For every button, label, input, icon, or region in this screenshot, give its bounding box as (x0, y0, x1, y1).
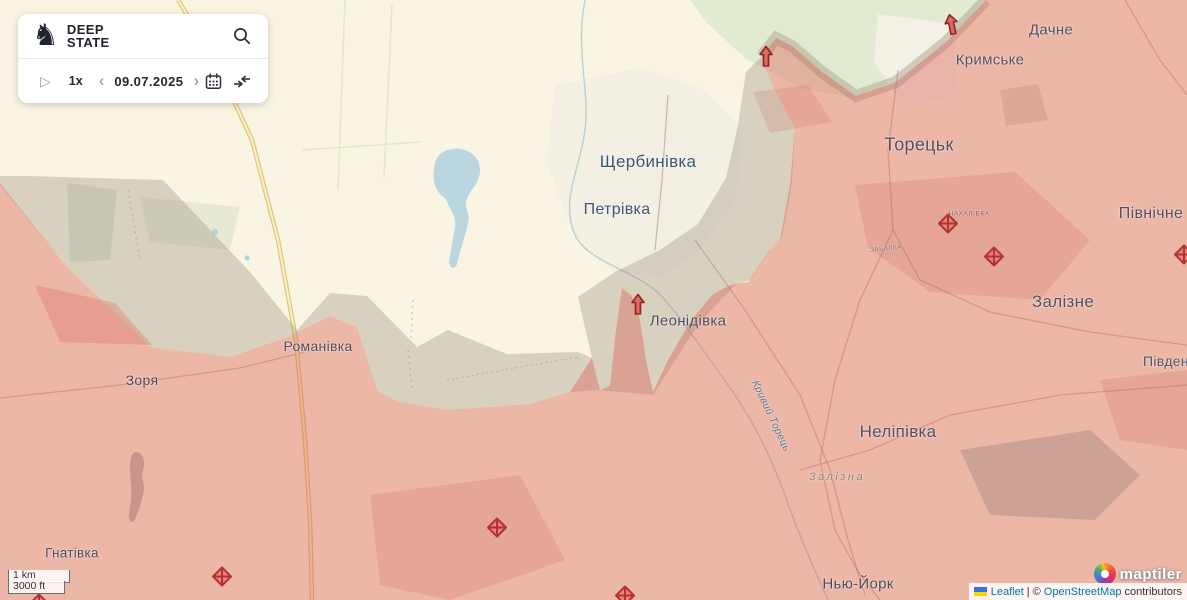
pond (245, 256, 250, 261)
next-day-button[interactable]: › (191, 71, 201, 91)
copyright-symbol: © (1033, 586, 1041, 598)
place-label: Нью-Йорк (822, 576, 893, 593)
map-canvas[interactable]: ЩербинівкаПетрівкаДачнеКримськеТорецькПі… (0, 0, 1187, 600)
maptiler-logo[interactable]: maptiler (1094, 563, 1182, 585)
lake (434, 149, 481, 268)
jump-to-latest-button[interactable] (230, 72, 254, 91)
place-label: Дачне (1029, 22, 1073, 39)
play-button[interactable]: ▷ (40, 73, 51, 90)
brand-line2: STATE (67, 36, 110, 50)
place-label: Петрівка (584, 201, 651, 219)
date-display[interactable]: 09.07.2025 (114, 74, 183, 89)
calendar-button[interactable] (203, 71, 224, 92)
place-label: Леонідівка (650, 313, 726, 330)
ukraine-flag-icon (974, 587, 987, 596)
fortification-diamond-icon (984, 246, 1005, 267)
deepstate-control-panel: ♞ DEEP STATE ▷ 1x ‹ 09.07.2025 › (18, 14, 268, 103)
place-label: Залізне (1032, 292, 1094, 312)
fortification-diamond-icon (938, 213, 959, 234)
maptiler-wordmark: maptiler (1120, 566, 1182, 583)
advance-arrow-icon (631, 294, 646, 316)
leaflet-link[interactable]: Leaflet (991, 586, 1024, 598)
fortification-marker[interactable] (984, 246, 1005, 272)
collapse-arrows-icon (232, 74, 252, 89)
advance-arrow-icon (759, 46, 774, 68)
contributors-text: contributors (1125, 586, 1182, 598)
advance-arrow-marker[interactable] (759, 46, 774, 73)
place-label: Неліпівка (860, 422, 937, 442)
place-label: Кримське (956, 52, 1025, 69)
osm-link[interactable]: OpenStreetMap (1044, 586, 1122, 598)
scale-imperial: 3000 ft (8, 581, 65, 594)
fortification-marker[interactable] (615, 585, 636, 600)
fortification-marker[interactable] (212, 566, 233, 592)
playback-speed[interactable]: 1x (69, 74, 83, 88)
panel-top-row: ♞ DEEP STATE (18, 14, 268, 58)
place-label: Залізна (809, 471, 865, 483)
fortification-diamond-icon (487, 517, 508, 538)
calendar-icon (205, 73, 222, 90)
fortification-marker[interactable] (487, 517, 508, 543)
place-label: Зоря (126, 372, 159, 388)
deepstate-knight-logo-icon: ♞ (32, 21, 59, 51)
place-label: Торецьк (884, 135, 953, 156)
field-lines (302, 0, 420, 190)
attribution-bar: Leaflet | © OpenStreetMap contributors (969, 583, 1187, 600)
advance-arrow-marker[interactable] (631, 294, 646, 321)
place-label: Північне (1119, 205, 1183, 223)
fortification-marker[interactable] (1174, 244, 1187, 270)
maptiler-pinwheel-icon (1094, 563, 1116, 585)
deepstate-brand: DEEP STATE (67, 23, 110, 50)
scale-control: 1 km 3000 ft (8, 570, 70, 594)
panel-timeline-row: ▷ 1x ‹ 09.07.2025 › (18, 59, 268, 103)
search-button[interactable] (230, 24, 254, 48)
place-label: Гнатівка (45, 546, 99, 561)
place-label: Романівка (283, 338, 352, 354)
place-label: Щербинівка (600, 152, 697, 172)
brand-line1: DEEP (67, 23, 110, 37)
fortification-diamond-icon (1174, 244, 1187, 265)
fortification-diamond-icon (615, 585, 636, 600)
attribution-divider: | (1027, 586, 1030, 598)
previous-day-button[interactable]: ‹ (97, 71, 107, 91)
fortification-diamond-icon (212, 566, 233, 587)
search-icon (232, 26, 252, 46)
place-label: Південне (1143, 353, 1187, 369)
fortification-marker[interactable] (938, 213, 959, 239)
